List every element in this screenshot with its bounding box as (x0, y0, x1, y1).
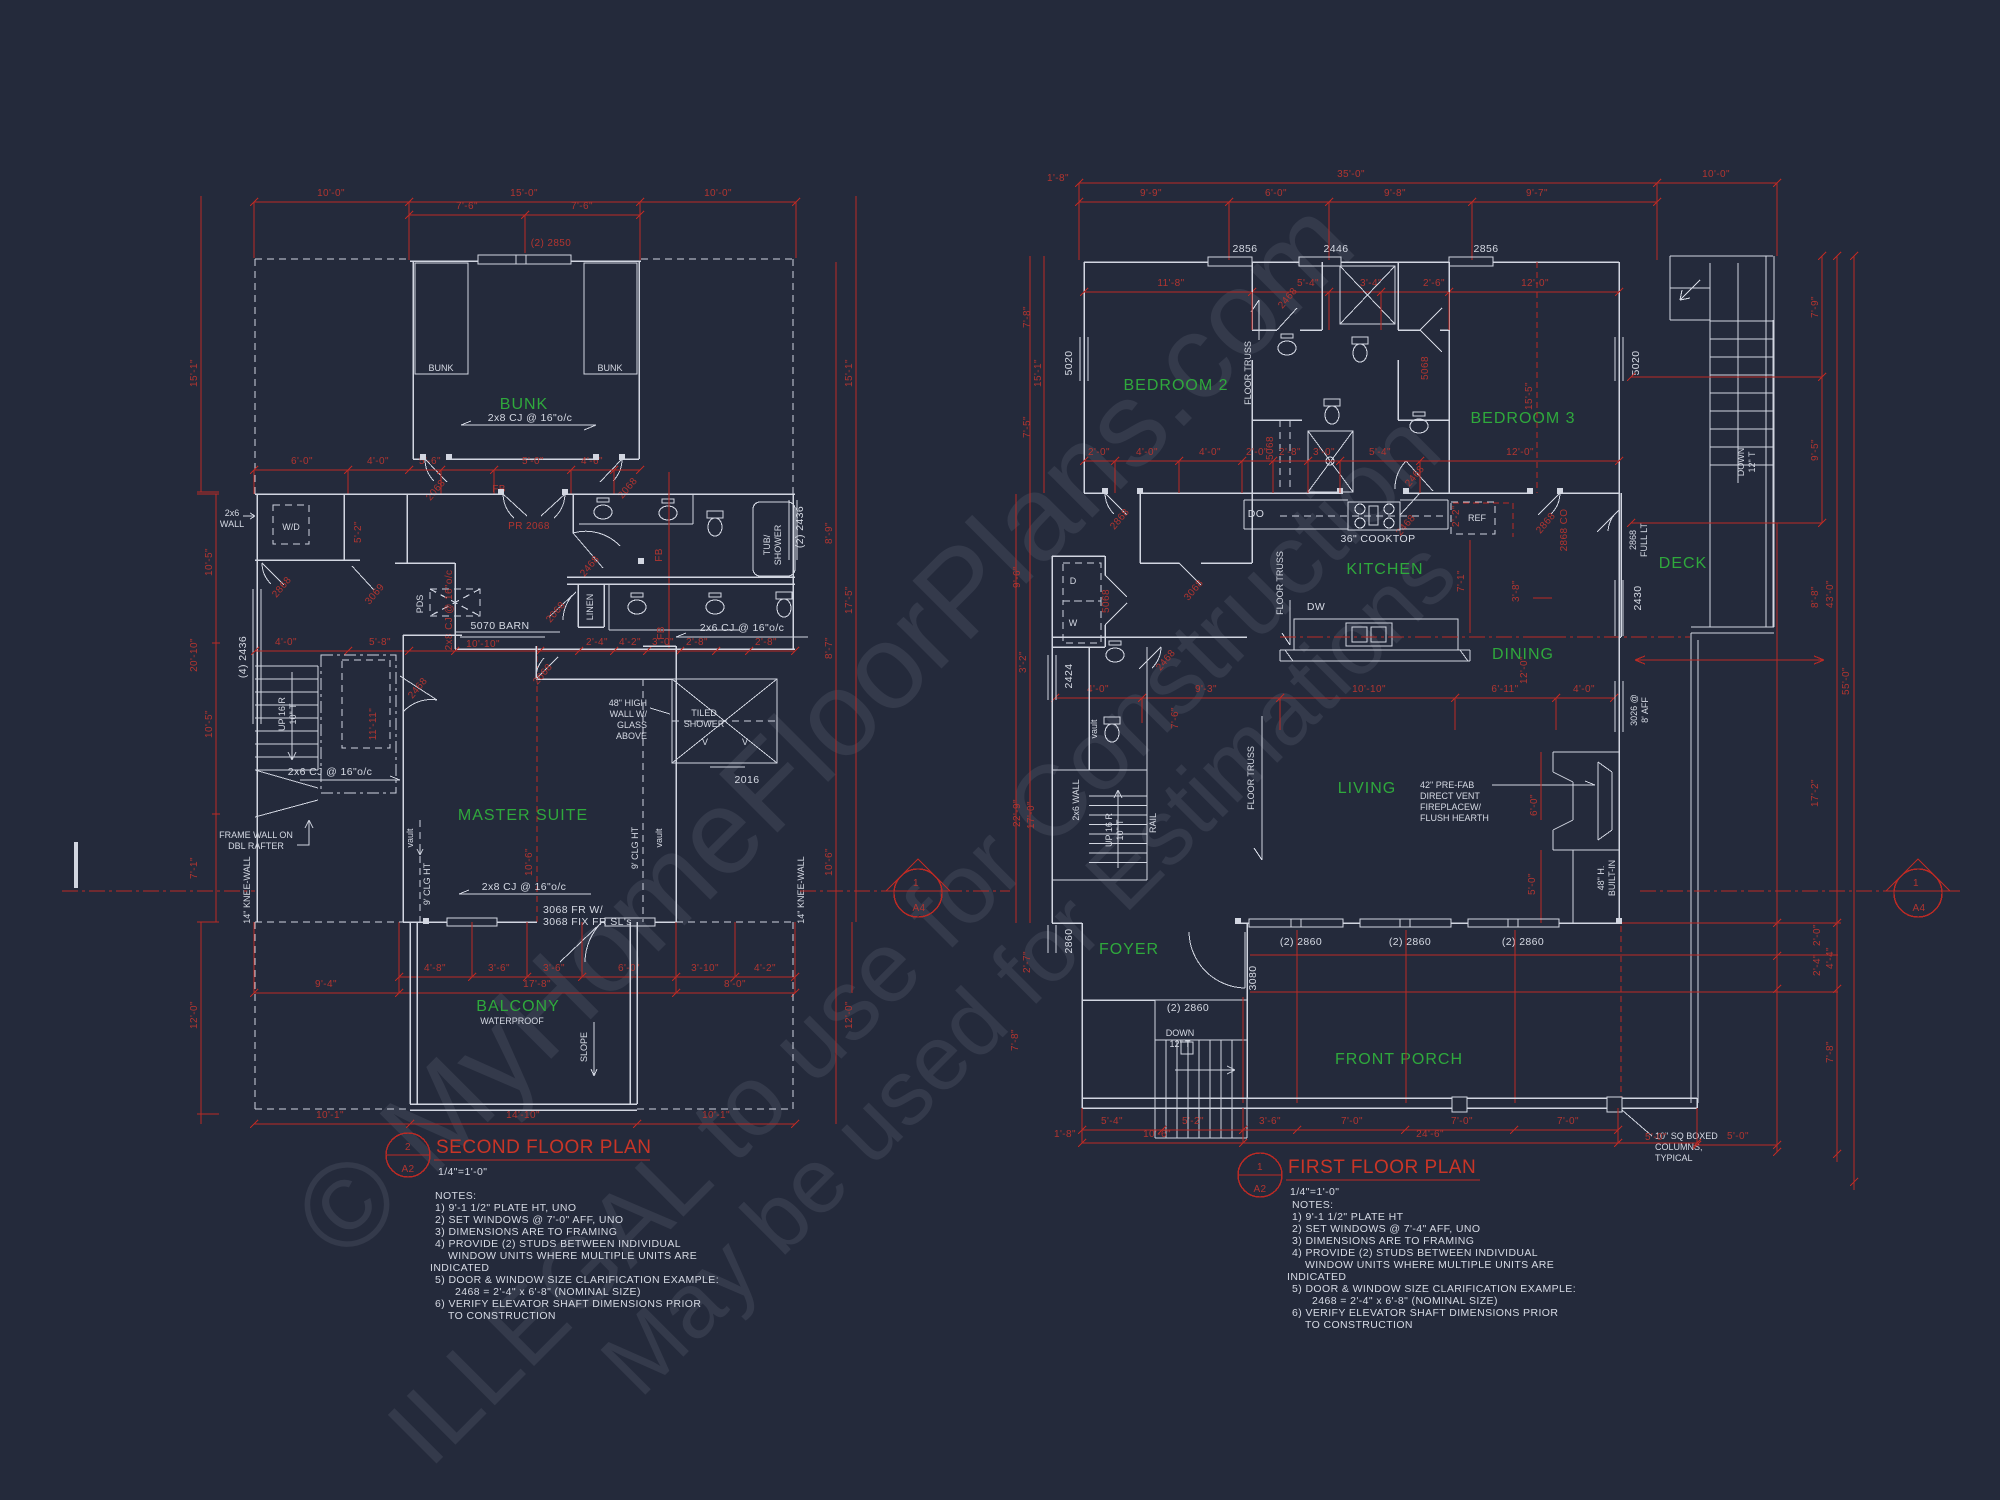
svg-text:FRONT PORCH: FRONT PORCH (1335, 1051, 1463, 1068)
svg-text:5'-0": 5'-0" (1527, 873, 1538, 895)
svg-text:8'-7": 8'-7" (824, 637, 835, 659)
svg-text:10'-5": 10'-5" (204, 710, 215, 738)
svg-text:2'-0": 2'-0" (1088, 447, 1110, 458)
svg-text:9'-8": 9'-8" (1384, 188, 1406, 199)
svg-text:5'-4": 5'-4" (1101, 1116, 1123, 1127)
svg-text:2868 CO: 2868 CO (1559, 509, 1570, 552)
svg-text:15'-0": 15'-0" (510, 188, 538, 199)
svg-text:UP 16 R: UP 16 R (1104, 813, 1114, 847)
svg-text:17'-5": 17'-5" (844, 586, 855, 614)
svg-text:W: W (1069, 618, 1078, 628)
svg-text:3'-6": 3'-6" (543, 963, 565, 974)
svg-text:TUB/: TUB/ (762, 534, 772, 555)
svg-text:BUNK: BUNK (500, 396, 548, 413)
svg-text:UP 16 R: UP 16 R (277, 697, 287, 731)
svg-text:11'-11": 11'-11" (368, 708, 379, 740)
svg-text:8'-0": 8'-0" (724, 979, 746, 990)
svg-text:TILED: TILED (691, 708, 717, 718)
svg-text:(2) 2436: (2) 2436 (794, 506, 806, 548)
svg-text:V: V (702, 737, 708, 747)
svg-text:BEDROOM 3: BEDROOM 3 (1470, 410, 1575, 427)
svg-text:SHOWER: SHOWER (684, 719, 725, 729)
svg-text:7'-0": 7'-0" (1341, 1116, 1363, 1127)
svg-text:22'-9": 22'-9" (1012, 799, 1023, 827)
svg-text:4'-2": 4'-2" (754, 963, 776, 974)
svg-text:1/4"=1'-0": 1/4"=1'-0" (1290, 1186, 1339, 1198)
svg-text:3) DIMENSIONS ARE TO FRAMING: 3) DIMENSIONS ARE TO FRAMING (1292, 1235, 1474, 1247)
svg-text:3) DIMENSIONS ARE TO FRAMING: 3) DIMENSIONS ARE TO FRAMING (435, 1226, 617, 1238)
svg-text:4'-0": 4'-0" (367, 456, 389, 467)
svg-text:5020: 5020 (1630, 351, 1642, 376)
svg-text:2446: 2446 (1324, 243, 1349, 255)
svg-text:vault: vault (654, 828, 664, 848)
svg-text:14'-10": 14'-10" (506, 1110, 540, 1121)
svg-text:5'-4": 5'-4" (1369, 447, 1391, 458)
svg-text:FLOOR TRUSS: FLOOR TRUSS (1246, 746, 1256, 810)
svg-text:2x8 CJ @ 16"o/c: 2x8 CJ @ 16"o/c (444, 570, 455, 651)
svg-text:5'-8": 5'-8" (369, 637, 391, 648)
svg-text:2) SET WINDOWS @ 7'-0" AFF, UN: 2) SET WINDOWS @ 7'-0" AFF, UNO (435, 1214, 623, 1226)
svg-text:4'-0": 4'-0" (1573, 684, 1595, 695)
svg-text:17'-2": 17'-2" (1810, 779, 1821, 807)
svg-text:10" T: 10" T (288, 703, 298, 725)
svg-text:DO: DO (1248, 508, 1265, 520)
svg-text:55'-0": 55'-0" (1841, 667, 1852, 695)
svg-text:FIREPLACEW/: FIREPLACEW/ (1420, 802, 1482, 812)
svg-text:5) DOOR & WINDOW SIZE CLARIFIC: 5) DOOR & WINDOW SIZE CLARIFICATION EXAM… (1292, 1283, 1576, 1295)
svg-text:3'-0": 3'-0" (1313, 447, 1335, 458)
svg-text:4'-4": 4'-4" (1825, 947, 1836, 969)
svg-text:6) VERIFY ELEVATOR SHAFT DIMEN: 6) VERIFY ELEVATOR SHAFT DIMENSIONS PRIO… (435, 1298, 701, 1310)
svg-text:2) SET WINDOWS @ 7'-4" AFF, UN: 2) SET WINDOWS @ 7'-4" AFF, UNO (1292, 1223, 1480, 1235)
svg-text:15'-5": 15'-5" (1524, 382, 1535, 410)
svg-text:D: D (1070, 576, 1077, 586)
svg-text:LIVING: LIVING (1338, 780, 1396, 797)
svg-text:TYPICAL: TYPICAL (1655, 1153, 1693, 1163)
svg-text:NOTES:: NOTES: (435, 1190, 477, 1202)
svg-text:TO CONSTRUCTION: TO CONSTRUCTION (448, 1310, 556, 1322)
svg-text:4'-0": 4'-0" (1087, 684, 1109, 695)
svg-text:1/4"=1'-0": 1/4"=1'-0" (438, 1166, 487, 1178)
svg-text:10'-5": 10'-5" (204, 548, 215, 576)
svg-text:W/D: W/D (282, 522, 300, 532)
svg-text:A4: A4 (912, 903, 925, 914)
svg-text:43'-0": 43'-0" (1825, 580, 1836, 608)
svg-text:35'-0": 35'-0" (1337, 169, 1365, 180)
svg-text:11'-8": 11'-8" (1157, 278, 1184, 289)
svg-text:BALCONY: BALCONY (476, 998, 559, 1015)
svg-text:6'-0": 6'-0" (1529, 794, 1540, 816)
svg-text:1) 9'-1 1/2" PLATE HT, UNO: 1) 9'-1 1/2" PLATE HT, UNO (435, 1202, 576, 1214)
svg-text:(2) 2850: (2) 2850 (531, 238, 571, 249)
svg-text:KITCHEN: KITCHEN (1346, 561, 1423, 578)
svg-text:12" T: 12" T (1169, 1039, 1191, 1049)
svg-text:10'-6": 10'-6" (524, 848, 535, 876)
svg-text:5'-2": 5'-2" (1182, 1116, 1204, 1127)
svg-text:BUNK: BUNK (428, 363, 453, 373)
svg-text:DIRECT VENT: DIRECT VENT (1420, 791, 1480, 801)
svg-text:12'-0": 12'-0" (189, 1001, 200, 1029)
svg-text:2x6 CJ @ 16"o/c: 2x6 CJ @ 16"o/c (288, 766, 373, 778)
svg-text:2'-8": 2'-8" (1279, 447, 1301, 458)
svg-text:4'-0": 4'-0" (1136, 447, 1158, 458)
svg-text:5020: 5020 (1063, 351, 1075, 376)
svg-text:WATERPROOF: WATERPROOF (480, 1016, 544, 1026)
svg-text:12'-0": 12'-0" (1506, 447, 1534, 458)
svg-text:5'-4": 5'-4" (1297, 278, 1319, 289)
svg-text:1: 1 (1257, 1162, 1263, 1173)
svg-text:7'-9": 7'-9" (1810, 296, 1821, 318)
svg-text:DW: DW (1307, 601, 1325, 613)
svg-text:2'-4": 2'-4" (1812, 954, 1823, 976)
svg-text:FRAME WALL ON: FRAME WALL ON (219, 830, 293, 840)
svg-text:7'-1": 7'-1" (1456, 570, 1467, 592)
svg-text:MASTER SUITE: MASTER SUITE (458, 807, 588, 824)
svg-text:14" KNEE-WALL: 14" KNEE-WALL (796, 856, 806, 923)
svg-text:4'-0": 4'-0" (275, 637, 297, 648)
svg-text:LINEN: LINEN (585, 594, 595, 621)
svg-text:6'-11": 6'-11" (1491, 684, 1518, 695)
svg-text:10'-10": 10'-10" (466, 639, 500, 650)
svg-text:10'-0": 10'-0" (1702, 169, 1730, 180)
svg-text:1: 1 (1913, 878, 1919, 889)
svg-text:3'-10": 3'-10" (691, 963, 719, 974)
svg-text:7'-6": 7'-6" (456, 201, 478, 212)
svg-text:9'-5": 9'-5" (1810, 439, 1821, 461)
svg-text:2'-8": 2'-8" (755, 637, 777, 648)
svg-text:2'-2": 2'-2" (1451, 505, 1462, 527)
svg-text:15'-1": 15'-1" (844, 359, 855, 387)
svg-text:REF: REF (1468, 513, 1487, 523)
svg-text:3026 @: 3026 @ (1629, 694, 1639, 726)
svg-text:9'-4": 9'-4" (315, 979, 337, 990)
svg-text:BEDROOM 2: BEDROOM 2 (1123, 377, 1228, 394)
svg-text:7'-8": 7'-8" (1825, 1041, 1836, 1063)
svg-text:2856: 2856 (1474, 243, 1499, 255)
svg-text:6) VERIFY ELEVATOR SHAFT DIMEN: 6) VERIFY ELEVATOR SHAFT DIMENSIONS PRIO… (1292, 1307, 1558, 1319)
svg-text:3068 FR W/: 3068 FR W/ (543, 904, 603, 916)
svg-text:2424: 2424 (1063, 664, 1075, 689)
svg-text:NOTES:: NOTES: (1292, 1199, 1334, 1211)
svg-text:8'-8": 8'-8" (1810, 586, 1821, 608)
svg-text:4'-8": 4'-8" (424, 963, 446, 974)
svg-text:FULL LT: FULL LT (1639, 522, 1649, 557)
svg-text:WINDOW UNITS WHERE MULTIPLE UN: WINDOW UNITS WHERE MULTIPLE UNITS ARE (448, 1250, 697, 1262)
svg-text:7'-1": 7'-1" (189, 857, 200, 879)
svg-text:3'-2": 3'-2" (1018, 651, 1029, 673)
svg-text:SHOWER: SHOWER (773, 524, 783, 565)
svg-text:A4: A4 (1912, 903, 1925, 914)
svg-text:2: 2 (405, 1142, 411, 1153)
svg-text:15'-1": 15'-1" (189, 359, 200, 387)
svg-text:SLOPE: SLOPE (579, 1032, 589, 1062)
svg-text:3'-6": 3'-6" (1259, 1116, 1281, 1127)
svg-text:2x8 CJ @ 16"o/c: 2x8 CJ @ 16"o/c (488, 412, 573, 424)
svg-text:2468 = 2'-4" x 6'-8" (NOMINAL: 2468 = 2'-4" x 6'-8" (NOMINAL SIZE) (455, 1286, 641, 1298)
svg-text:PR 2068: PR 2068 (508, 521, 550, 532)
svg-text:42" PRE-FAB: 42" PRE-FAB (1420, 780, 1474, 790)
svg-text:6'-0": 6'-0" (1265, 188, 1287, 199)
svg-text:10'-0": 10'-0" (704, 188, 732, 199)
svg-text:2'-4": 2'-4" (586, 637, 608, 648)
svg-text:7'-6": 7'-6" (1170, 707, 1181, 729)
svg-text:2'-8": 2'-8" (686, 637, 708, 648)
svg-text:2x8 CJ @ 16"o/c: 2x8 CJ @ 16"o/c (482, 881, 567, 893)
svg-text:vault: vault (1089, 719, 1099, 739)
svg-text:9'-6": 9'-6" (1012, 566, 1023, 588)
svg-text:4'-2": 4'-2" (619, 637, 641, 648)
svg-text:2'-0": 2'-0" (1812, 924, 1823, 946)
svg-text:7'-8": 7'-8" (1022, 306, 1033, 328)
svg-text:12'-0": 12'-0" (1519, 656, 1530, 684)
svg-text:10'-6": 10'-6" (1143, 1129, 1171, 1140)
svg-text:24'-6": 24'-6" (1416, 1129, 1444, 1140)
svg-text:3080: 3080 (1247, 966, 1259, 991)
svg-text:9' CLG HT: 9' CLG HT (422, 862, 432, 905)
svg-text:2'-0": 2'-0" (1246, 447, 1268, 458)
svg-text:20'-10": 20'-10" (189, 638, 200, 672)
svg-text:48" H.: 48" H. (1596, 866, 1606, 891)
svg-text:DBL RAFTER: DBL RAFTER (228, 841, 284, 851)
svg-text:WALL: WALL (220, 519, 244, 529)
svg-text:FB: FB (654, 548, 665, 562)
svg-text:WALL W/: WALL W/ (610, 709, 648, 719)
svg-text:2'-6": 2'-6" (1423, 278, 1445, 289)
svg-text:(2) 2860: (2) 2860 (1280, 936, 1322, 948)
svg-text:4'-0": 4'-0" (1199, 447, 1221, 458)
svg-text:2860: 2860 (1063, 929, 1075, 954)
svg-text:8'-9": 8'-9" (824, 522, 835, 544)
svg-text:5'-0": 5'-0" (1727, 1131, 1749, 1142)
svg-text:DECK: DECK (1659, 555, 1707, 572)
svg-text:7'-8": 7'-8" (1010, 1029, 1021, 1051)
svg-text:1: 1 (913, 878, 919, 889)
svg-text:7'-0": 7'-0" (1451, 1116, 1473, 1127)
svg-text:4'-6": 4'-6" (581, 456, 603, 467)
svg-text:5'-2": 5'-2" (353, 521, 364, 543)
svg-text:(2) 2860: (2) 2860 (1167, 1002, 1209, 1014)
svg-text:(2) 2860: (2) 2860 (1502, 936, 1544, 948)
svg-text:9'-3": 9'-3" (1195, 684, 1217, 695)
svg-text:12'-0": 12'-0" (844, 1001, 855, 1029)
svg-text:5070 BARN: 5070 BARN (470, 620, 529, 632)
svg-text:1) 9'-1 1/2" PLATE HT: 1) 9'-1 1/2" PLATE HT (1292, 1211, 1404, 1223)
svg-text:14" KNEE-WALL: 14" KNEE-WALL (242, 856, 252, 923)
svg-text:5068: 5068 (1420, 356, 1431, 380)
svg-text:4) PROVIDE (2) STUDS BETWEEN I: 4) PROVIDE (2) STUDS BETWEEN INDIVIDUAL (1292, 1247, 1538, 1259)
svg-text:10'-10": 10'-10" (1352, 684, 1386, 695)
svg-text:6'-0": 6'-0" (291, 456, 313, 467)
svg-text:2868: 2868 (1628, 530, 1638, 550)
svg-text:ABOVE: ABOVE (616, 731, 647, 741)
svg-text:FOYER: FOYER (1099, 941, 1159, 958)
svg-text:A2: A2 (1253, 1184, 1266, 1195)
svg-text:10'-0": 10'-0" (317, 188, 345, 199)
svg-text:GLASS: GLASS (617, 720, 647, 730)
svg-text:2856: 2856 (1233, 243, 1258, 255)
svg-text:BUNK: BUNK (597, 363, 622, 373)
svg-text:10'-6": 10'-6" (824, 848, 835, 876)
svg-text:5) DOOR & WINDOW SIZE CLARIFIC: 5) DOOR & WINDOW SIZE CLARIFICATION EXAM… (435, 1274, 719, 1286)
svg-text:DOWN: DOWN (1166, 1028, 1195, 1038)
svg-text:2x6 WALL: 2x6 WALL (1071, 779, 1081, 820)
svg-text:12" T: 12" T (1747, 451, 1757, 473)
svg-text:7'-6": 7'-6" (571, 201, 593, 212)
svg-text:4) PROVIDE (2) STUDS BETWEEN I: 4) PROVIDE (2) STUDS BETWEEN INDIVIDUAL (435, 1238, 681, 1250)
svg-text:10'-1": 10'-1" (702, 1110, 730, 1121)
svg-text:vault: vault (405, 828, 415, 848)
svg-text:10'-1": 10'-1" (316, 1110, 344, 1121)
svg-text:V: V (742, 737, 748, 747)
svg-text:10" T: 10" T (1115, 819, 1125, 841)
svg-text:17'-0": 17'-0" (1026, 801, 1037, 829)
svg-text:7'-5": 7'-5" (1022, 416, 1033, 438)
svg-text:(2) 2860: (2) 2860 (1389, 936, 1431, 948)
svg-text:BUILT-IN: BUILT-IN (1607, 860, 1617, 896)
svg-text:5068: 5068 (1101, 589, 1112, 613)
svg-text:12'-0": 12'-0" (1521, 278, 1549, 289)
svg-text:48" HIGH: 48" HIGH (609, 698, 647, 708)
svg-text:INDICATED: INDICATED (430, 1262, 489, 1274)
svg-text:1'-8": 1'-8" (1054, 1129, 1076, 1140)
svg-text:FLOOR TRUSS: FLOOR TRUSS (1275, 551, 1285, 615)
svg-text:2016: 2016 (735, 774, 760, 786)
svg-text:SECOND FLOOR PLAN: SECOND FLOOR PLAN (436, 1137, 651, 1158)
svg-text:8' AFF: 8' AFF (1640, 697, 1650, 723)
svg-text:A2: A2 (401, 1164, 414, 1175)
svg-text:9'-7": 9'-7" (1526, 188, 1548, 199)
svg-text:9' CLG HT: 9' CLG HT (630, 826, 640, 869)
svg-text:FIRST FLOOR PLAN: FIRST FLOOR PLAN (1288, 1157, 1476, 1178)
svg-text:TO CONSTRUCTION: TO CONSTRUCTION (1305, 1319, 1413, 1331)
svg-text:2x6 CJ @ 16"o/c: 2x6 CJ @ 16"o/c (700, 622, 785, 634)
svg-text:RAIL: RAIL (1148, 813, 1158, 833)
svg-text:7'-0": 7'-0" (1557, 1116, 1579, 1127)
svg-text:(4) 2436: (4) 2436 (237, 636, 249, 678)
svg-text:1'-8": 1'-8" (1047, 173, 1069, 184)
svg-text:2'-7": 2'-7" (1022, 951, 1033, 973)
svg-text:17'-8": 17'-8" (523, 979, 551, 990)
svg-text:PDS: PDS (415, 595, 425, 614)
svg-text:36" COOKTOP: 36" COOKTOP (1340, 533, 1415, 545)
svg-text:5'-0": 5'-0" (1645, 1132, 1667, 1143)
svg-text:2468 = 2'-4" x 6'-8" (NOMINAL: 2468 = 2'-4" x 6'-8" (NOMINAL SIZE) (1312, 1295, 1498, 1307)
svg-text:5'-0": 5'-0" (522, 456, 544, 467)
svg-text:2430: 2430 (1632, 586, 1644, 611)
svg-text:9'-9": 9'-9" (1140, 188, 1162, 199)
svg-text:3'-6": 3'-6" (488, 963, 510, 974)
svg-text:3'-8": 3'-8" (1511, 580, 1522, 602)
svg-text:DOWN: DOWN (1736, 448, 1746, 477)
svg-text:2x6: 2x6 (225, 508, 240, 518)
svg-text:FLUSH HEARTH: FLUSH HEARTH (1420, 813, 1489, 823)
svg-text:15'-1": 15'-1" (1033, 359, 1044, 387)
svg-text:INDICATED: INDICATED (1287, 1271, 1346, 1283)
svg-text:WINDOW UNITS WHERE MULTIPLE UN: WINDOW UNITS WHERE MULTIPLE UNITS ARE (1305, 1259, 1554, 1271)
